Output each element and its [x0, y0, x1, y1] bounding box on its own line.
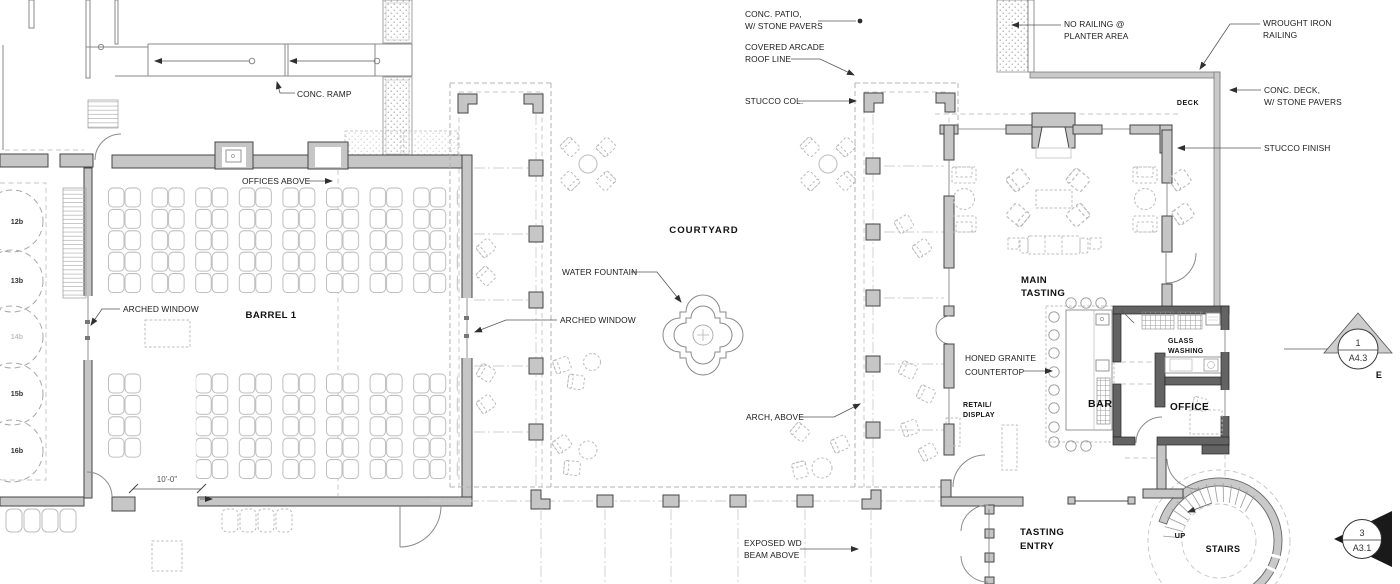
room-label-main-tasting: MAIN	[1021, 275, 1047, 286]
courtyard-area	[475, 19, 938, 480]
label-conc-ramp: CONC. RAMP	[297, 89, 352, 99]
stucco-column	[597, 495, 613, 507]
main-tasting-room	[935, 113, 1231, 506]
tasting-lounge-furniture	[952, 167, 1195, 254]
stucco-column	[529, 160, 543, 176]
barrel-grid	[108, 187, 458, 294]
room-label-courtyard: COURTYARD	[669, 225, 738, 236]
stair-hatch	[63, 188, 86, 298]
room-label-glass-washing: GLASS	[1168, 338, 1194, 345]
label-conc-deck-2: W/ STONE PAVERS	[1264, 97, 1342, 107]
label-stucco-finish: STUCCO FINISH	[1264, 143, 1330, 153]
room-label-glass-washing-2: WASHING	[1168, 348, 1204, 355]
room-label-retail: RETAIL/	[963, 402, 992, 409]
stucco-column	[936, 93, 955, 112]
water-fountain	[663, 295, 743, 375]
label-arched-window-right: ARCHED WINDOW	[560, 315, 636, 325]
label-wrought-iron: WROUGHT IRON	[1263, 18, 1332, 28]
door-swing-arc	[400, 506, 441, 547]
floor-plan-drawing: 1 A4.3 E 3 A3.1 CONC. PATIO, W/ STONE PA…	[0, 0, 1400, 584]
stucco-column	[866, 158, 880, 174]
arcade-right	[855, 83, 958, 490]
tank-label-12b: 12b	[11, 217, 24, 226]
room-label-tasting-entry: TASTING	[1020, 527, 1064, 538]
barrel-grid	[196, 373, 458, 480]
bar-counter	[1046, 298, 1114, 451]
stucco-column	[730, 495, 746, 507]
room-label-deck: DECK	[1177, 100, 1199, 107]
patio-reference-dot	[858, 19, 863, 24]
door-swing-arc	[1166, 253, 1196, 283]
stucco-column	[524, 94, 543, 113]
room-label-stairs: STAIRS	[1206, 544, 1241, 554]
exterior-barrels	[6, 509, 292, 571]
label-arch-above: ARCH, ABOVE	[746, 412, 804, 422]
label-covered-arcade: COVERED ARCADE	[745, 42, 825, 52]
planters	[345, 0, 1034, 158]
section-sheet: A3.1	[1353, 543, 1372, 553]
label-conc-patio: CONC. PATIO,	[745, 9, 802, 19]
stucco-column	[866, 356, 880, 372]
stucco-column	[529, 358, 543, 374]
stucco-column	[529, 292, 543, 308]
stair-hatch	[88, 100, 118, 128]
exposed-beam-lines	[541, 509, 871, 584]
detail-marker-a43: 1 A4.3 E	[1284, 313, 1392, 380]
stucco-column	[529, 226, 543, 242]
floor-plan-sheet: 1 A4.3 E 3 A3.1 CONC. PATIO, W/ STONE PA…	[0, 0, 1400, 584]
patio-table-group	[559, 136, 616, 191]
glass-washing-racks	[1142, 312, 1220, 329]
label-stucco-col: STUCCO COL.	[745, 96, 803, 106]
retail-display-fixtures	[946, 418, 1017, 470]
patio-seating	[552, 354, 600, 391]
barrel-grid	[108, 373, 144, 459]
label-dimension: 10'-0"	[157, 475, 178, 484]
stucco-column	[663, 495, 679, 507]
deck-railing	[1030, 72, 1220, 310]
section-marker-a31: 3 A3.1	[1334, 511, 1392, 567]
label-water-fountain: WATER FOUNTAIN	[562, 267, 637, 277]
label-conc-deck: CONC. DECK,	[1264, 85, 1320, 95]
arcade-bottom	[430, 487, 960, 584]
stucco-column	[864, 93, 883, 112]
detail-sheet: A4.3	[1349, 353, 1368, 363]
barrel-room	[0, 142, 474, 547]
arched-opening	[936, 316, 950, 344]
patio-seating	[789, 421, 850, 479]
section-number: 3	[1359, 528, 1364, 538]
label-honed-granite: HONED GRANITE	[965, 353, 1036, 363]
label-exposed-wd: EXPOSED WD	[744, 538, 802, 548]
circular-stairs	[1143, 445, 1290, 584]
label-up: UP	[1175, 531, 1186, 540]
detail-number: 1	[1355, 338, 1360, 348]
stucco-column	[862, 490, 881, 509]
detail-direction: E	[1376, 370, 1382, 380]
label-arched-window-left: ARCHED WINDOW	[123, 304, 199, 314]
label-wrought-iron-2: RAILING	[1263, 30, 1297, 40]
planter-area	[997, 0, 1028, 72]
fireplace	[1032, 113, 1075, 158]
label-covered-arcade-2: ROOF LINE	[745, 54, 791, 64]
label-exposed-wd-2: BEAM ABOVE	[744, 550, 800, 560]
stucco-column	[866, 290, 880, 306]
label-honed-granite-2: COUNTERTOP	[965, 367, 1025, 377]
stucco-column	[458, 94, 477, 113]
room-label-bar: BAR	[1088, 398, 1113, 410]
conc-ramp	[115, 44, 412, 76]
interior-partitions	[1113, 306, 1231, 488]
room-label-main-tasting-2: TASTING	[1021, 288, 1065, 299]
label-no-railing-2: PLANTER AREA	[1064, 31, 1129, 41]
door-swing-arc	[953, 455, 985, 487]
stucco-column	[866, 422, 880, 438]
tank-label-14b: 14b	[11, 332, 24, 341]
wrought-iron-railing	[1214, 72, 1220, 310]
stucco-column	[866, 224, 880, 240]
tank-label-13b: 13b	[11, 276, 24, 285]
patio-table-group	[799, 136, 856, 191]
upper-building-fragment	[3, 0, 148, 160]
label-offices-above: OFFICES ABOVE	[242, 176, 311, 186]
wrought-iron-railing	[1030, 72, 1220, 78]
label-conc-patio-2: W/ STONE PAVERS	[745, 21, 823, 31]
label-no-railing: NO RAILING @	[1064, 19, 1124, 29]
door-swing-arc	[961, 556, 988, 582]
patio-seating	[551, 434, 597, 476]
dashed-fixture	[145, 320, 190, 347]
room-label-tasting-entry-2: ENTRY	[1020, 541, 1054, 552]
stucco-column	[531, 490, 550, 509]
tank-label-16b: 16b	[11, 446, 24, 455]
room-label-barrel1: BARREL 1	[246, 310, 297, 321]
door-swing-arc	[961, 505, 988, 531]
stucco-column	[797, 495, 813, 507]
room-label-retail-2: DISPLAY	[963, 412, 995, 419]
tank-label-15b: 15b	[11, 389, 24, 398]
stucco-column	[529, 424, 543, 440]
room-label-office: OFFICE	[1170, 402, 1209, 413]
